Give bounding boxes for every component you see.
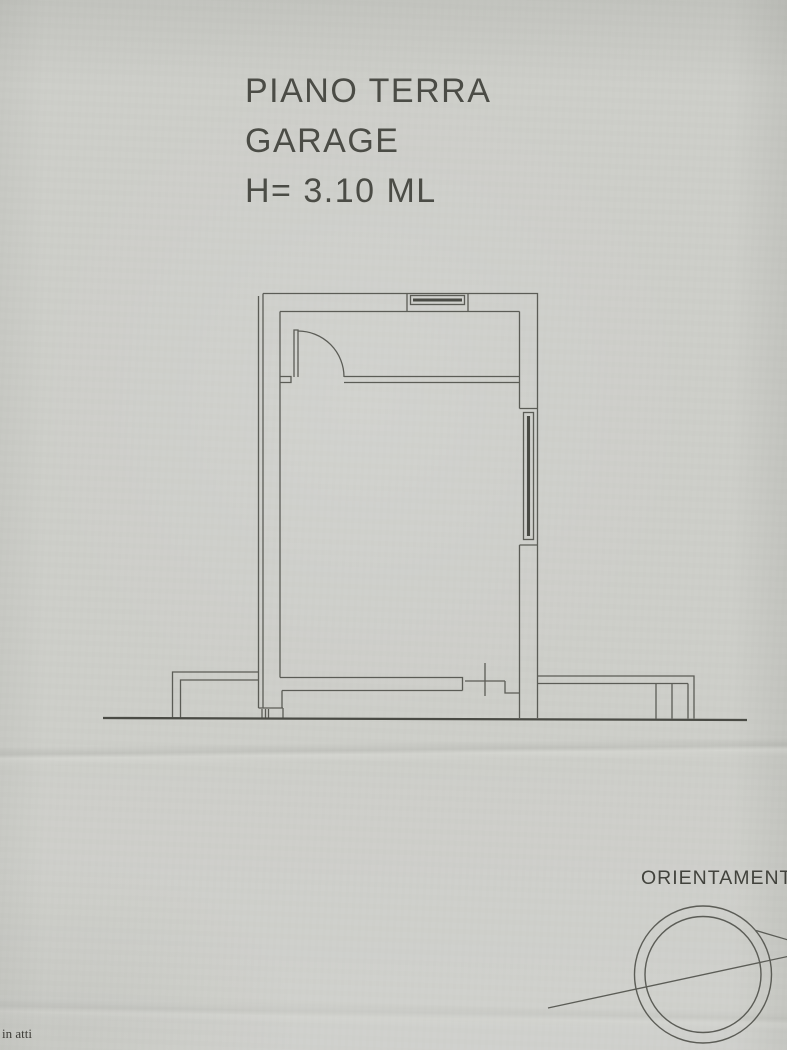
inner-walls [280, 312, 520, 719]
outer-walls [259, 294, 538, 719]
floorplan-drawing [0, 0, 787, 1050]
partition-wall [280, 377, 520, 383]
door-arc [298, 331, 344, 377]
door-swing [294, 330, 344, 377]
door-leaf [294, 330, 298, 377]
compass-arrow-line [756, 931, 787, 941]
ground-line [103, 718, 747, 720]
scanned-floorplan-page: PIANO TERRA GARAGE H= 3.10 ML [0, 0, 787, 1050]
right-railing [538, 676, 695, 719]
left-wall-foot [259, 691, 284, 719]
left-railing [173, 672, 259, 719]
orientation-compass [548, 906, 787, 1043]
top-window [407, 294, 468, 312]
compass-label: ORIENTAMENTO [641, 867, 787, 890]
side-window [520, 409, 538, 546]
margin-note: in atti [2, 1026, 32, 1042]
compass-needle-line [548, 956, 787, 1008]
floor-and-threshold [280, 663, 520, 696]
